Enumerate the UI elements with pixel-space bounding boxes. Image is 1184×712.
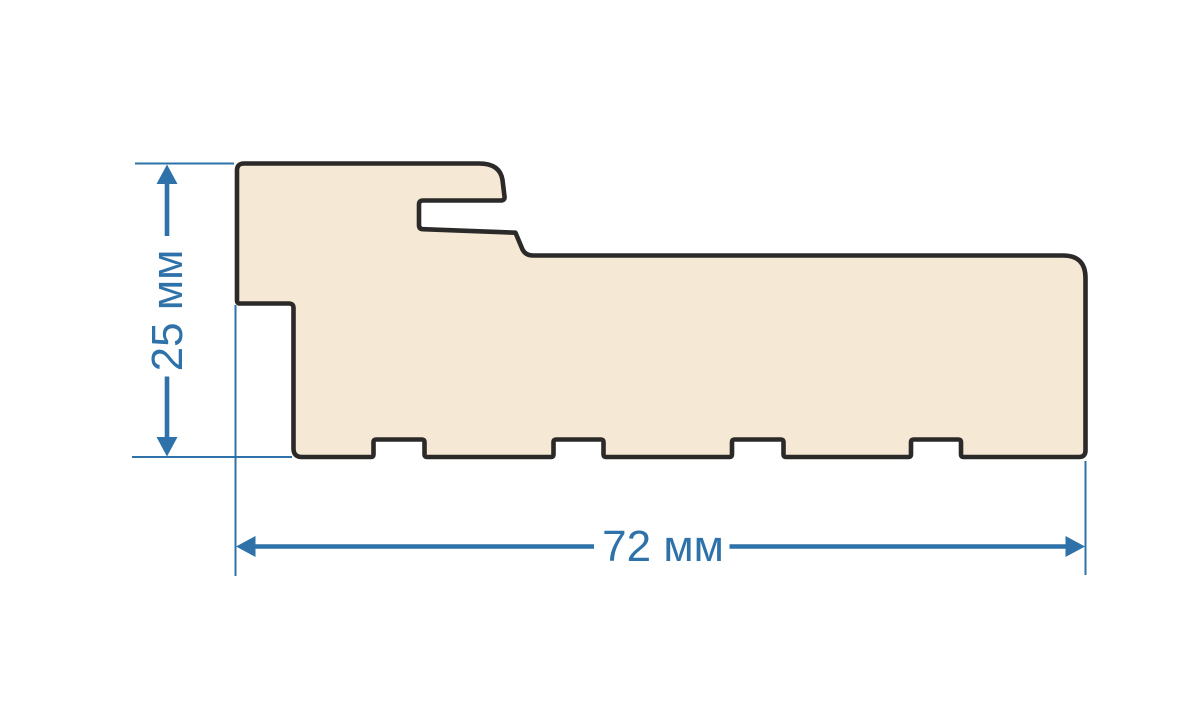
- svg-text:25 мм: 25 мм: [143, 250, 192, 372]
- svg-text:72 мм: 72 мм: [602, 522, 724, 571]
